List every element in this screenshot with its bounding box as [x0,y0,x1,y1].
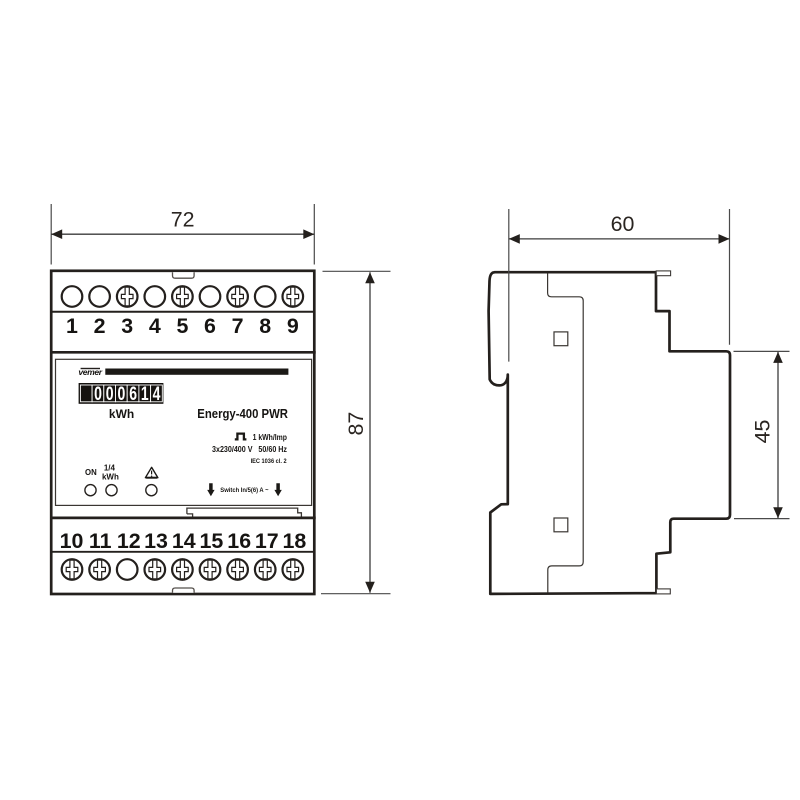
svg-text:1: 1 [66,314,78,338]
svg-text:13: 13 [144,529,168,553]
svg-text:IEC 1036 cl. 2: IEC 1036 cl. 2 [251,458,287,465]
svg-text:11: 11 [89,529,112,553]
svg-text:1/4: 1/4 [104,463,116,472]
svg-text:4: 4 [149,314,161,338]
svg-text:16: 16 [227,529,251,553]
svg-text:17: 17 [255,529,279,553]
svg-text:8: 8 [259,314,271,338]
svg-text:9: 9 [287,314,299,338]
svg-text:Switch In/5(6) A ~: Switch In/5(6) A ~ [220,487,268,494]
svg-text:87: 87 [344,412,368,436]
svg-text:ON: ON [85,468,97,477]
svg-text:kWh: kWh [109,407,134,421]
svg-text:7: 7 [232,314,244,338]
svg-text:1: 1 [141,384,149,405]
svg-text:12: 12 [117,529,141,553]
svg-text:10: 10 [60,529,84,553]
svg-text:4: 4 [153,384,161,405]
svg-text:14: 14 [172,529,196,553]
svg-text:72: 72 [171,208,195,232]
svg-text:15: 15 [200,529,224,553]
svg-text:45: 45 [751,420,775,444]
svg-text:vemer: vemer [78,367,102,377]
svg-text:kWh: kWh [102,473,119,482]
svg-text:2: 2 [94,314,106,338]
svg-text:0: 0 [118,384,126,405]
svg-text:3x230/400 V 50/60 Hz: 3x230/400 V 50/60 Hz [212,445,287,454]
svg-text:5: 5 [176,314,188,338]
svg-text:18: 18 [283,529,307,553]
svg-text:6: 6 [129,384,137,405]
svg-text:6: 6 [204,314,216,338]
svg-text:60: 60 [611,212,635,236]
svg-text:Energy-400 PWR: Energy-400 PWR [197,407,288,421]
svg-text:0: 0 [106,384,114,405]
svg-text:0: 0 [94,384,102,405]
svg-text:3: 3 [121,314,133,338]
svg-text:1 kWh/Imp: 1 kWh/Imp [253,433,288,442]
